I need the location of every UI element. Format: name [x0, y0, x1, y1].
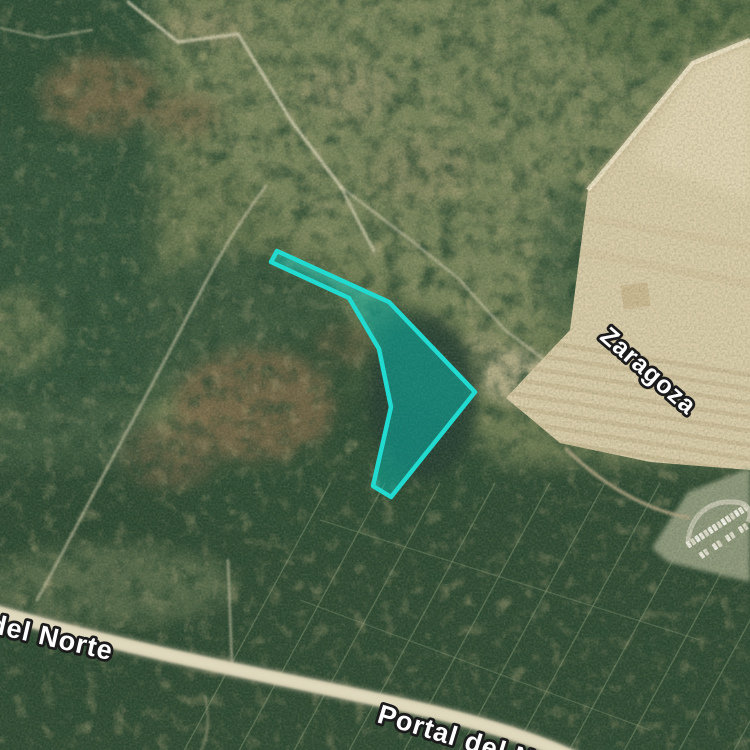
map-canvas: Zaragoza del Norte Portal del Norte — [0, 0, 750, 750]
satellite-map[interactable]: Zaragoza del Norte Portal del Norte — [0, 0, 750, 750]
